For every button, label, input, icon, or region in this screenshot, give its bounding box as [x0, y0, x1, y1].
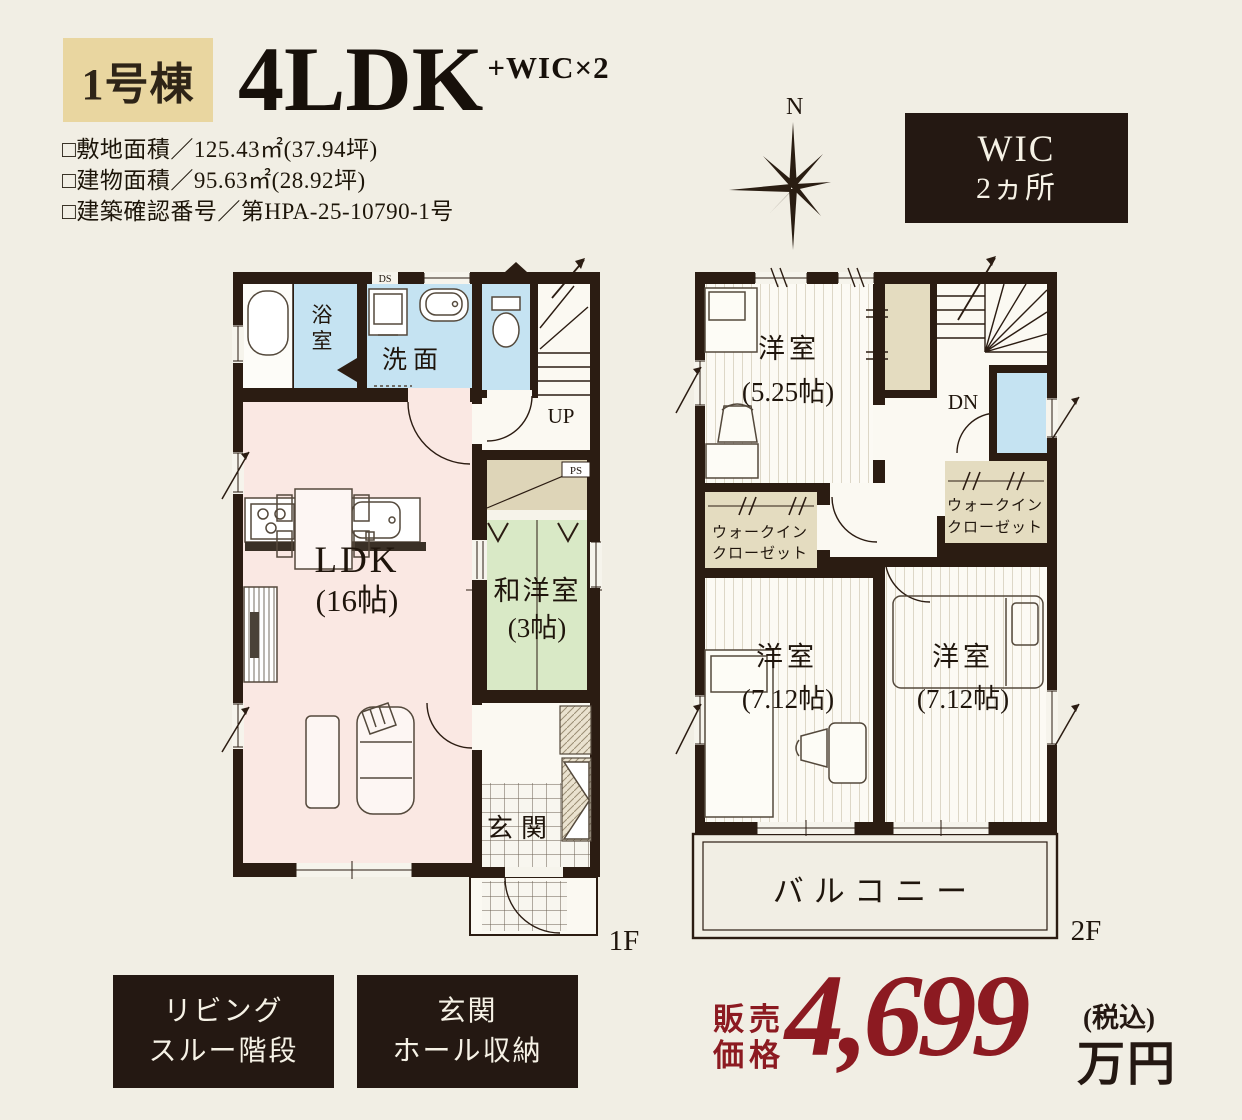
- site-area-line: □敷地面積／125.43㎡(37.94坪): [62, 134, 454, 165]
- balcony-label: バルコニー: [773, 874, 977, 909]
- feature1-line1: リビング: [163, 992, 283, 1032]
- feature-box-entrance-storage: 玄関 ホール収納: [357, 975, 578, 1088]
- price-block: 販売 価格 4,699 (税込) 万円: [705, 962, 1242, 1112]
- entrance-label: 玄関: [487, 814, 555, 843]
- bedroom2-size-label: (7.12帖): [742, 684, 834, 714]
- shoe-cabinet-icons: [560, 706, 591, 841]
- property-details: □敷地面積／125.43㎡(37.94坪) □建物面積／95.63㎡(28.92…: [62, 134, 454, 227]
- ldk-label: LDK: [314, 540, 399, 581]
- wic-feature-box: WIC 2ヵ所: [905, 113, 1128, 223]
- compass-icon: N: [723, 90, 868, 255]
- japanese-room-label: 和洋室: [494, 576, 581, 606]
- bed1-icon: [705, 288, 757, 352]
- room-toilet-2f: [997, 373, 1047, 453]
- hall-2f-a: [885, 398, 937, 483]
- bed2-icon: [705, 650, 773, 817]
- feature2-line1: 玄関: [437, 992, 497, 1032]
- low-table-icon: [306, 716, 339, 808]
- floorplan-2f: 洋室 (5.25帖) DN ウォークイン クローゼット ウォークイン クローゼッ…: [666, 248, 1132, 950]
- toilet-1f-icon: [492, 297, 520, 347]
- compass-north-label: N: [786, 94, 803, 120]
- bedroom1-label: 洋室: [758, 334, 820, 364]
- bedroom2-label: 洋室: [756, 642, 818, 672]
- layout-suffix-label: +WIC×2: [487, 50, 609, 85]
- closet-2f: [885, 284, 930, 390]
- vanity-sink-icon: [420, 289, 468, 321]
- tv-board-icon: [244, 587, 277, 682]
- sofa-icon: [357, 703, 414, 814]
- washroom-label: 洗面: [382, 346, 444, 374]
- wic-left-label-line1: ウォークイン: [712, 524, 808, 541]
- corridor-2f: [830, 483, 937, 557]
- bedroom3-label: 洋室: [932, 642, 994, 672]
- feature1-line2: スルー階段: [148, 1032, 298, 1072]
- feature-box-living-stairs: リビング スルー階段: [113, 975, 334, 1088]
- stairs-1f: [538, 284, 590, 400]
- feature2-line2: ホール収納: [392, 1032, 542, 1072]
- building-number-badge: 1号棟: [63, 38, 213, 122]
- building-area-line: □建物面積／95.63㎡(28.92坪): [62, 165, 454, 196]
- wic-right-label-line2: クローゼット: [947, 519, 1043, 536]
- wic-box-line2: 2ヵ所: [976, 173, 1057, 205]
- stairs-down-label: DN: [948, 390, 978, 414]
- price-label-line2: 価格: [713, 1038, 785, 1074]
- closet-track: [487, 510, 587, 520]
- duct-label: DS: [379, 274, 392, 285]
- bath-label-char2: 室: [312, 329, 333, 353]
- washing-machine-icon: [369, 289, 407, 335]
- price-label: 販売 価格: [713, 1002, 785, 1074]
- wic-right-label-line1: ウォークイン: [947, 497, 1043, 514]
- price-amount: 4,699: [785, 948, 1026, 1084]
- wic-box-line1: WIC: [978, 131, 1056, 169]
- floorplan-1f: 浴 室 洗面 DS UP PS LDK (16帖) 和洋室 (3帖) 玄関 1F: [213, 254, 660, 965]
- bathtub-icon: [248, 291, 288, 355]
- confirmation-number-line: □建築確認番号／第HPA-25-10790-1号: [62, 196, 454, 227]
- stairs-up-label: UP: [548, 404, 575, 428]
- price-unit: 万円: [1077, 1024, 1177, 1094]
- building-number-label: 1号棟: [82, 48, 195, 112]
- page-title: 4LDK+WIC×2: [238, 18, 610, 129]
- ldk-size-label: (16帖): [316, 583, 399, 618]
- pipe-space-label: PS: [570, 465, 582, 477]
- bedroom1-size-label: (5.25帖): [742, 377, 834, 407]
- flyer-page: 1号棟 4LDK+WIC×2 □敷地面積／125.43㎡(37.94坪) □建物…: [0, 0, 1242, 1120]
- floor1-label: 1F: [609, 925, 640, 957]
- wic-left-label-line2: クローゼット: [712, 545, 808, 562]
- japanese-room-size-label: (3帖): [508, 613, 566, 643]
- floor2-label: 2F: [1071, 915, 1102, 947]
- price-label-line1: 販売: [713, 1002, 785, 1038]
- bedroom3-size-label: (7.12帖): [917, 684, 1009, 714]
- bath-label-char1: 浴: [312, 303, 333, 327]
- compass-star: [729, 122, 831, 250]
- layout-type-label: 4LDK: [238, 28, 483, 130]
